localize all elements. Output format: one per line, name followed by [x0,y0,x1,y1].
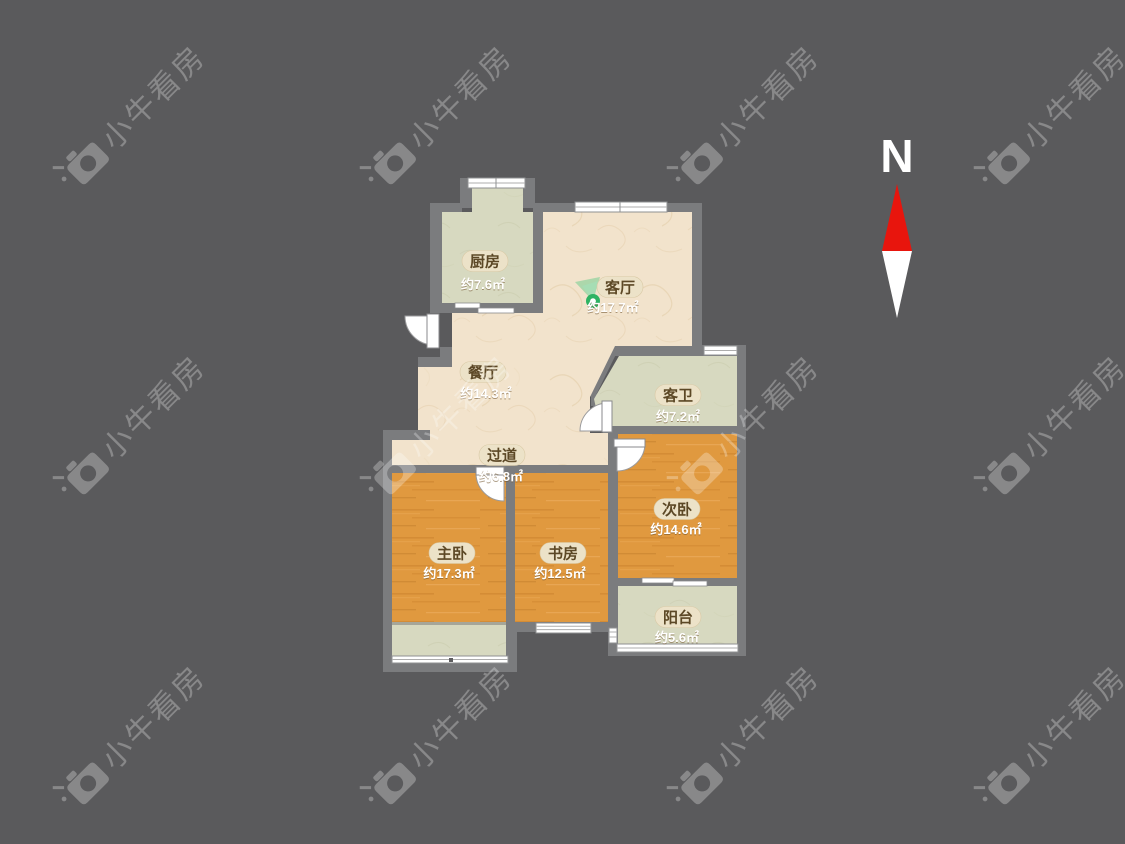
room-area: 约5.6㎡ [655,630,699,645]
room-name: 书房 [548,545,578,563]
compass-needle-south [882,251,912,318]
room-label-hallway: 过道 约6.8㎡ [479,445,525,485]
room-name: 厨房 [470,253,500,271]
entry-door [405,314,439,348]
room-area: 约17.7㎡ [587,300,638,315]
room-area: 约14.6㎡ [650,522,701,537]
watermark [51,655,213,817]
room-area: 约6.8㎡ [479,469,523,484]
master-bay-separator [392,622,506,625]
watermark [972,655,1125,817]
floorplan-svg: 小牛看房 [0,0,1125,844]
watermark [972,35,1125,197]
room-name: 客厅 [604,279,635,297]
compass-north-label: N [880,130,913,182]
compass-needle-north [882,184,912,251]
room-label-balcony: 阳台 约5.6㎡ [655,607,701,646]
watermark [358,35,520,197]
master-bay-window [392,656,508,663]
room-name: 主卧 [437,545,467,563]
room-name: 过道 [487,447,517,465]
room-area: 约7.6㎡ [461,277,505,292]
room-name: 次卧 [662,501,692,519]
room-name: 客卫 [662,387,693,405]
compass: N [880,130,913,318]
master-bay-floor [392,625,506,657]
kitchen-window [468,178,525,188]
watermark [51,345,213,507]
room-name: 阳台 [663,609,693,627]
watermark [51,35,213,197]
watermark [665,655,827,817]
guest-bathroom-window [704,346,737,355]
balcony-side-window [609,628,617,643]
balcony-window [617,644,738,652]
floorplan-canvas: 小牛看房 [0,0,1125,844]
watermark [358,655,520,817]
study-window [536,623,591,633]
living-room-window [575,202,667,212]
room-area: 约12.5㎡ [534,566,585,581]
room-area: 约17.3㎡ [423,566,474,581]
watermark [972,345,1125,507]
room-area: 约7.2㎡ [656,409,700,424]
room-label-guest-bathroom: 客卫 约7.2㎡ [655,385,701,425]
watermark [665,35,827,197]
